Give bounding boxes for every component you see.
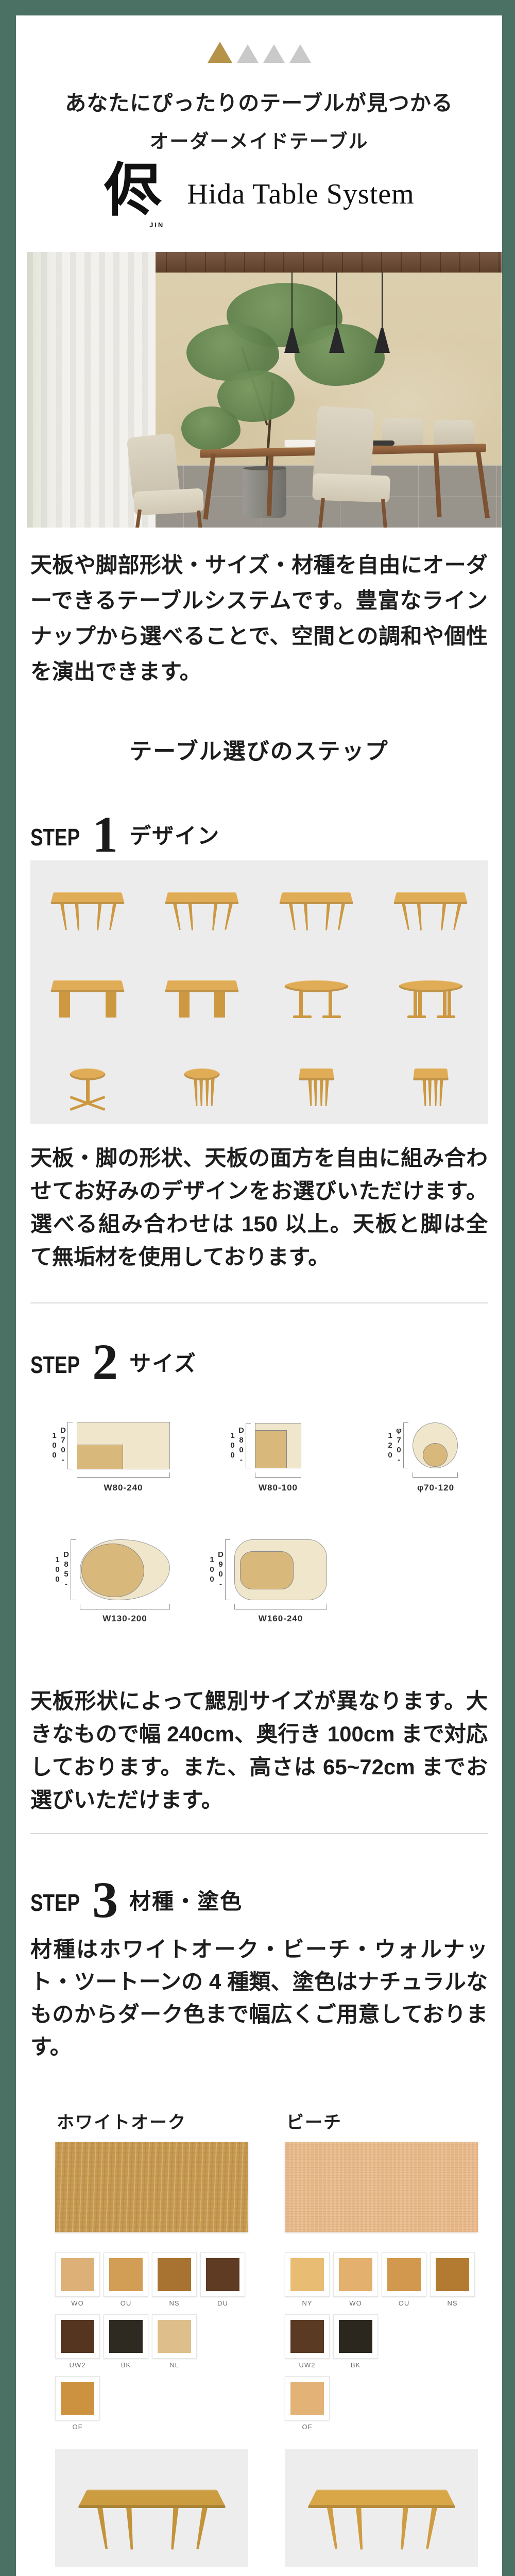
- swatch-frame: [285, 2252, 330, 2297]
- table-part: [199, 1077, 203, 1106]
- step3-title: 材種・塗色: [129, 1884, 243, 1916]
- design-option: [373, 863, 488, 945]
- swatch: WO: [55, 2252, 100, 2308]
- width-bracket: [255, 1472, 301, 1478]
- table-part: [211, 901, 218, 930]
- table-render: [304, 2462, 459, 2554]
- size-diagram-inner: [81, 1544, 144, 1597]
- table-part: [407, 1015, 426, 1018]
- swatch-color: [206, 2258, 239, 2291]
- swatch: NL: [152, 2314, 197, 2370]
- step2-number: 2: [92, 1341, 118, 1384]
- swatch-code: NL: [169, 2361, 179, 2370]
- size-diagram-rect: [77, 1422, 170, 1469]
- swatch: UW2: [55, 2314, 100, 2370]
- size-diagram-inner: [240, 1551, 294, 1589]
- swatch-row: UW2BK: [285, 2314, 478, 2370]
- section-divider: [30, 1833, 488, 1834]
- table-part: [322, 1015, 341, 1018]
- swatch-color: [61, 2320, 94, 2353]
- design-option: [259, 863, 373, 945]
- table-part: [224, 901, 233, 930]
- triangle-icon: [237, 44, 259, 63]
- table-render: [278, 875, 355, 933]
- depth-bracket: [71, 1539, 76, 1600]
- step1-title: デザイン: [129, 819, 220, 850]
- table-part: [326, 2502, 339, 2549]
- swatch: BK: [104, 2314, 148, 2370]
- table-part: [401, 901, 410, 930]
- table-part: [210, 1077, 215, 1106]
- table-render: [392, 875, 469, 933]
- design-grid-row: [30, 951, 488, 1033]
- triangle-icon: [289, 44, 311, 63]
- landing-page: あなたにぴったりのテーブルが見つかる オーダーメイドテーブル 侭 JIN Hid…: [0, 0, 515, 2576]
- table-part: [414, 989, 417, 1016]
- size-diagram-inner: [255, 1430, 287, 1468]
- table-part: [126, 2502, 134, 2550]
- triangle-icon: [263, 44, 285, 63]
- swatch-color: [290, 2320, 324, 2353]
- logo-kanji-icon: 侭 JIN: [104, 161, 165, 228]
- swatch-code: DU: [217, 2299, 228, 2308]
- design-option: [145, 863, 259, 945]
- depth-label: D70-100: [50, 1420, 67, 1471]
- design-option: [145, 1039, 259, 1122]
- table-part: [194, 1077, 198, 1106]
- table-part: [355, 2502, 364, 2550]
- swatch-frame: [104, 2314, 148, 2359]
- swatch-frame: [55, 2376, 100, 2420]
- table-part: [183, 1068, 220, 1080]
- table-part: [399, 2502, 409, 2550]
- table-render: [392, 963, 469, 1021]
- swatch-color: [290, 2258, 324, 2291]
- table-part: [205, 1077, 209, 1106]
- table-part: [96, 2502, 109, 2549]
- design-option: [145, 951, 259, 1033]
- table-part: [75, 901, 80, 930]
- swatch-code: OU: [121, 2299, 132, 2308]
- swatch-color: [109, 2258, 143, 2291]
- swatch-color: [158, 2320, 191, 2353]
- table-part: [439, 1077, 443, 1106]
- swatch-code: NY: [302, 2299, 312, 2308]
- swatch-color: [339, 2320, 372, 2353]
- swatch-frame: [382, 2252, 426, 2297]
- swatch-code: UW2: [70, 2361, 86, 2370]
- step1-number: 1: [92, 813, 118, 856]
- swatch-code: WO: [349, 2299, 362, 2308]
- table-part: [279, 892, 353, 904]
- table-render: [49, 875, 126, 933]
- swatch-color: [290, 2382, 324, 2415]
- step3-heading: STEP 3 材種・塗色: [30, 1870, 243, 1922]
- size-diagram-inner: [77, 1445, 123, 1469]
- table-part: [288, 901, 297, 930]
- swatch-frame: [55, 2252, 100, 2297]
- swatch-frame: [333, 2252, 378, 2297]
- step1-description: 天板・脚の形状、天板の面方を自由に組み合わせてお好みのデザインをお選びいただけま…: [30, 1142, 488, 1274]
- swatch-color: [109, 2320, 143, 2353]
- material-beech: ビーチ NYWOOUNSUW2BKOF: [285, 2108, 480, 2567]
- table-part: [440, 901, 447, 930]
- table-part: [195, 2502, 209, 2549]
- depth-label: D85-100: [53, 1539, 71, 1600]
- table-part: [169, 2502, 179, 2550]
- swatch: OF: [285, 2376, 330, 2432]
- swatch-color: [387, 2258, 421, 2291]
- size-diagram-rect: [255, 1423, 301, 1468]
- width-bracket: [413, 1472, 458, 1478]
- product-table-image: [285, 2449, 478, 2567]
- table-render: [163, 875, 241, 933]
- table-part: [179, 989, 190, 1018]
- design-grid-row: [30, 863, 488, 945]
- step1-heading: STEP 1 デザイン: [30, 805, 220, 856]
- width-label: φ70-120: [397, 1483, 474, 1493]
- table-part: [50, 980, 125, 992]
- table-part: [314, 1077, 318, 1106]
- swatch-code: NS: [447, 2299, 457, 2308]
- design-option: [30, 951, 145, 1033]
- width-label: W160-240: [234, 1614, 327, 1624]
- table-part: [319, 1077, 323, 1106]
- wood-texture-sample: [55, 2142, 248, 2232]
- table-part: [434, 1077, 438, 1106]
- color-swatches: NYWOOUNSUW2BKOF: [285, 2252, 478, 2438]
- dining-room-photo: [27, 252, 502, 528]
- depth-bracket: [403, 1422, 408, 1468]
- table-part: [337, 901, 346, 930]
- table-render: [278, 963, 355, 1021]
- table-part: [308, 1077, 313, 1106]
- table-part: [424, 2502, 438, 2549]
- step3-label: STEP: [30, 1889, 80, 1917]
- depth-label: φ70-120: [386, 1419, 403, 1472]
- table-part: [417, 901, 423, 930]
- table-part: [428, 1077, 432, 1106]
- step2-heading: STEP 2 サイズ: [30, 1332, 197, 1384]
- content-card: あなたにぴったりのテーブルが見つかる オーダーメイドテーブル 侭 JIN Hid…: [16, 15, 502, 2576]
- swatch-frame: [430, 2252, 475, 2297]
- swatch-row: OF: [55, 2376, 249, 2432]
- color-swatches: WOOUNSDUUW2BKNLOF: [55, 2252, 249, 2438]
- logo-kanji: 侭: [104, 161, 165, 222]
- table-part: [398, 980, 464, 992]
- table-part: [437, 1015, 455, 1018]
- swatch-frame: [200, 2252, 245, 2297]
- plant-pot: [243, 466, 286, 518]
- table-part: [443, 989, 447, 1016]
- swatch-code: WO: [71, 2299, 83, 2308]
- table-part: [108, 901, 117, 930]
- table-part: [86, 1077, 90, 1104]
- table-part: [324, 901, 331, 930]
- swatch: NS: [430, 2252, 475, 2308]
- table-part: [165, 980, 239, 992]
- design-option: [259, 1039, 373, 1122]
- swatch-code: OF: [72, 2423, 82, 2432]
- width-bracket: [77, 1472, 170, 1478]
- design-option: [373, 951, 488, 1033]
- swatch-code: BK: [351, 2361, 360, 2370]
- table-part: [448, 989, 451, 1016]
- table-part: [59, 989, 70, 1018]
- swatch: NY: [285, 2252, 330, 2308]
- step3-description: 材種はホワイトオーク・ビーチ・ウォルナット・ツートーンの 4 種類、塗色はナチュ…: [30, 1933, 488, 2063]
- swatch-frame: [152, 2314, 197, 2359]
- width-bracket: [234, 1604, 327, 1609]
- steps-section-title: テーブル選びのステップ: [16, 733, 502, 766]
- table-part: [324, 1077, 329, 1106]
- swatch-code: BK: [121, 2361, 131, 2370]
- width-label: W80-100: [239, 1483, 317, 1493]
- swatch-frame: [333, 2314, 378, 2359]
- size-diagram-rounded: [234, 1539, 327, 1600]
- table-part: [422, 1077, 427, 1106]
- design-option: [30, 863, 145, 945]
- swatch-code: NS: [169, 2299, 179, 2308]
- swatch: UW2: [285, 2314, 330, 2370]
- swatch-row: UW2BKNL: [55, 2314, 249, 2370]
- product-table-image: [55, 2449, 248, 2567]
- depth-label: D80-100: [228, 1420, 246, 1471]
- design-grid-row: [30, 1039, 488, 1122]
- table-part: [188, 901, 194, 930]
- design-option: [373, 1039, 488, 1122]
- design-options-grid: [30, 860, 488, 1124]
- size-diagram-organic: [80, 1539, 170, 1600]
- swatch-row: NYWOOUNS: [285, 2252, 478, 2308]
- table-part: [299, 1068, 334, 1080]
- swatch-frame: [152, 2252, 197, 2297]
- logo-wordmark: Hida Table System: [187, 178, 414, 211]
- table-render: [163, 963, 241, 1021]
- table-render: [49, 963, 126, 1021]
- step1-label: STEP: [30, 823, 80, 851]
- swatch: OU: [104, 2252, 148, 2308]
- swatch: WO: [333, 2252, 378, 2308]
- table-part: [393, 892, 468, 904]
- ceiling-beam: [146, 252, 502, 273]
- intro-paragraph: 天板や脚部形状・サイズ・材種を自由にオーダーできるテーブルシステムです。豊富なラ…: [30, 547, 488, 689]
- table-part: [299, 989, 303, 1016]
- swatch-frame: [104, 2252, 148, 2297]
- depth-bracket: [225, 1539, 230, 1600]
- swatch-row: OF: [285, 2376, 478, 2432]
- swatch: NS: [152, 2252, 197, 2308]
- step2-title: サイズ: [129, 1346, 197, 1378]
- table-part: [173, 901, 182, 930]
- triangle-decoration: [16, 41, 502, 63]
- table-render: [49, 1052, 126, 1109]
- swatch: OF: [55, 2376, 100, 2432]
- table-part: [78, 2489, 226, 2508]
- swatch-frame: [285, 2376, 330, 2420]
- depth-label: D90-100: [208, 1539, 225, 1600]
- swatch-color: [61, 2258, 94, 2291]
- table-part: [293, 1015, 312, 1018]
- swatch: DU: [200, 2252, 245, 2308]
- hero-title-line1: あなたにぴったりのテーブルが見つかる: [16, 86, 502, 116]
- depth-bracket: [246, 1423, 251, 1468]
- table-part: [69, 1068, 106, 1080]
- size-diagram-inner: [423, 1443, 448, 1467]
- table-render: [75, 2462, 229, 2554]
- swatch-frame: [55, 2314, 100, 2359]
- design-option: [30, 1039, 145, 1122]
- triangle-icon: [208, 42, 232, 63]
- table-part: [452, 901, 462, 930]
- swatch-code: OU: [399, 2299, 410, 2308]
- wood-texture-sample: [285, 2142, 478, 2232]
- brand-logo: 侭 JIN Hida Table System: [16, 161, 502, 228]
- table-part: [283, 980, 350, 992]
- table-render: [392, 1052, 469, 1109]
- swatch-color: [158, 2258, 191, 2291]
- width-label: W80-240: [77, 1483, 170, 1493]
- depth-bracket: [67, 1422, 73, 1469]
- design-option: [259, 951, 373, 1033]
- size-diagram-ellipse: [413, 1422, 458, 1468]
- table-part: [96, 901, 102, 930]
- table-part: [307, 2489, 456, 2508]
- hero-title-line2: オーダーメイドテーブル: [16, 126, 502, 154]
- swatch-code: OF: [302, 2423, 312, 2432]
- table-render: [163, 1052, 241, 1109]
- material-whiteoak: ホワイトオーク WOOUNSDUUW2BKNLOF: [55, 2108, 251, 2567]
- section-divider: [30, 1302, 488, 1303]
- armchair-seat: [133, 488, 204, 515]
- material-name: ビーチ: [286, 2108, 342, 2133]
- step2-label: STEP: [30, 1351, 80, 1379]
- logo-kanji-reading: JIN: [149, 221, 164, 229]
- plant-foliage: [295, 324, 385, 386]
- step3-number: 3: [92, 1878, 118, 1922]
- table-part: [50, 892, 125, 904]
- table-part: [303, 901, 309, 930]
- step2-description: 天板形状によって鰓別サイズが異なります。大きなもので幅 240cm、奥行き 10…: [30, 1685, 488, 1817]
- width-bracket: [80, 1604, 170, 1609]
- table-render: [278, 1052, 355, 1109]
- swatch-color: [61, 2382, 94, 2415]
- table-part: [418, 989, 422, 1016]
- swatch-color: [436, 2258, 469, 2291]
- table-part: [106, 989, 116, 1018]
- swatch-frame: [285, 2314, 330, 2359]
- swatch: BK: [333, 2314, 378, 2370]
- swatch-code: UW2: [299, 2361, 316, 2370]
- swatch: OU: [382, 2252, 426, 2308]
- plant-foliage: [181, 406, 241, 450]
- swatch-row: WOOUNSDU: [55, 2252, 249, 2308]
- table-part: [214, 989, 225, 1018]
- table-part: [329, 989, 332, 1016]
- table-part: [60, 901, 68, 930]
- table-part: [165, 892, 239, 904]
- material-name: ホワイトオーク: [57, 2108, 186, 2133]
- width-label: W130-200: [80, 1614, 170, 1624]
- swatch-color: [339, 2258, 372, 2291]
